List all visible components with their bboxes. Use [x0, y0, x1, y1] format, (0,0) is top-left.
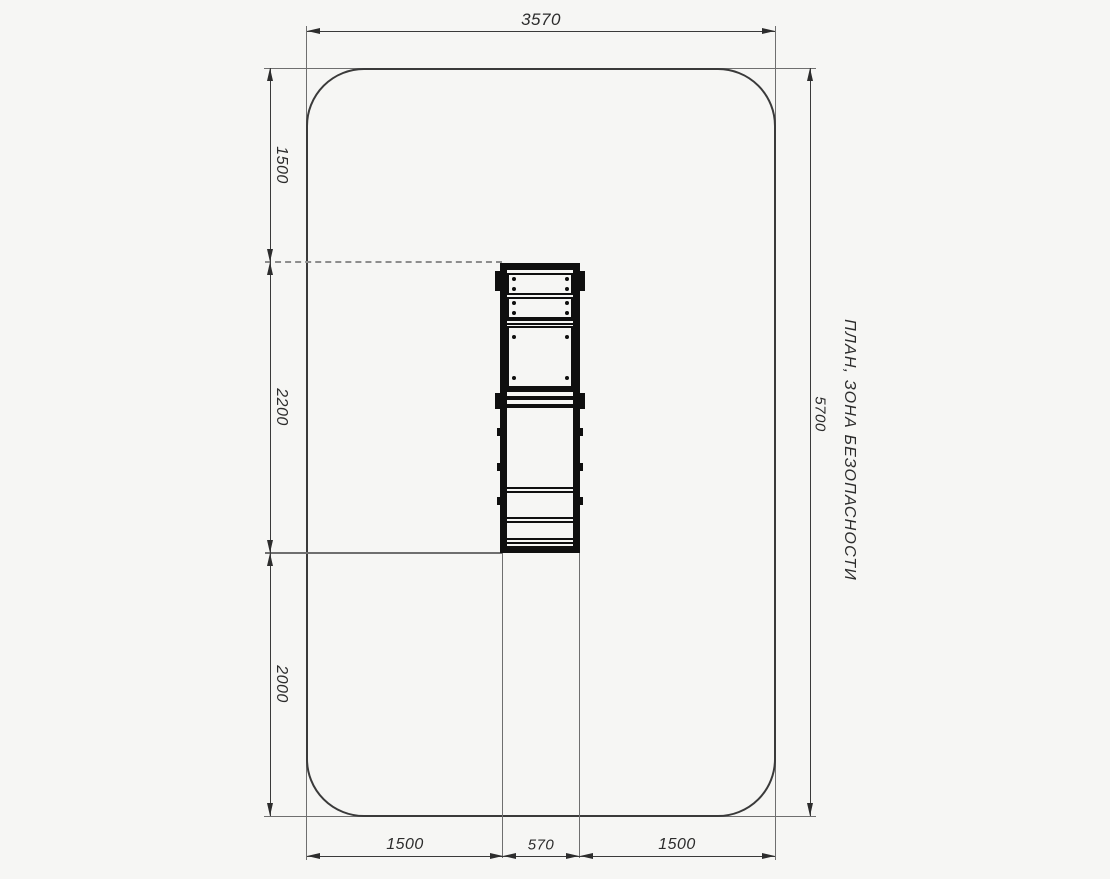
rail-notch [497, 497, 500, 505]
mounting-tab [580, 271, 585, 291]
dimension-label-bottom-left: 1500 [386, 836, 424, 854]
equipment-panel [507, 273, 573, 295]
dim-arrow [580, 853, 593, 859]
equipment-bottom-bar [500, 546, 580, 553]
rail-notch [497, 428, 500, 436]
dim-arrow [807, 803, 813, 816]
dimension-label-left-top: 1500 [272, 146, 290, 184]
screw-dot [565, 376, 569, 380]
screw-dot [512, 301, 516, 305]
screw-dot [565, 335, 569, 339]
equipment-left-extension-line [502, 553, 503, 858]
dim-arrow [267, 68, 273, 81]
ladder-rung-thin [507, 491, 573, 493]
screw-dot [565, 277, 569, 281]
dim-arrow [267, 803, 273, 816]
mounting-tab [495, 271, 500, 291]
screw-dot [512, 287, 516, 291]
equipment-bottom-reference-line [265, 552, 503, 554]
dim-arrow [807, 68, 813, 81]
screw-dot [512, 376, 516, 380]
equipment-right-extension-line [579, 553, 580, 858]
equipment-top-bar [500, 263, 580, 270]
left-dimension-line [270, 68, 271, 816]
dim-arrow [490, 853, 503, 859]
right-dimension-line [810, 68, 811, 816]
screw-dot [565, 301, 569, 305]
plan-drawing: 3570 1500 2200 2000 5700 ПЛАН, ЗОНА БЕЗО… [0, 0, 1110, 879]
equipment-top-reference-dashed-line [265, 261, 502, 263]
screw-dot [512, 311, 516, 315]
dim-arrow [267, 540, 273, 553]
ladder-rail-left [500, 263, 507, 553]
top-dimension-line [307, 31, 775, 32]
dimension-label-top: 3570 [521, 10, 561, 30]
ladder-rung-thin [507, 538, 573, 540]
screw-dot [512, 335, 516, 339]
dimension-label-bottom-center: 570 [528, 837, 555, 854]
drawing-title: ПЛАН, ЗОНА БЕЗОПАСНОСТИ [840, 319, 858, 581]
safety-zone-outline [306, 68, 776, 817]
dim-arrow [762, 853, 775, 859]
mounting-tab [580, 393, 585, 409]
ladder-rung [500, 404, 580, 408]
dimension-label-right: 5700 [812, 396, 829, 431]
dim-arrow [307, 853, 320, 859]
rail-notch [497, 463, 500, 471]
equipment-panel-large [507, 326, 573, 388]
dimension-label-left-middle: 2200 [272, 388, 290, 426]
ladder-rung-thin [507, 542, 573, 544]
screw-dot [512, 277, 516, 281]
ladder-rail-right [573, 263, 580, 553]
rail-notch [580, 463, 583, 471]
screw-dot [565, 311, 569, 315]
dim-arrow [267, 553, 273, 566]
ladder-rung-thin [507, 521, 573, 523]
separator-line [503, 323, 577, 325]
screw-dot [565, 287, 569, 291]
ladder-rung [500, 396, 580, 400]
equipment-panel [507, 297, 573, 319]
dim-arrow [267, 249, 273, 262]
dim-arrow [503, 853, 516, 859]
rail-notch [580, 497, 583, 505]
dim-arrow [762, 28, 775, 34]
dimension-label-left-bottom: 2000 [272, 665, 290, 703]
bottom-dimension-line [307, 856, 775, 857]
dimension-label-bottom-right: 1500 [658, 836, 696, 854]
dim-arrow [267, 262, 273, 275]
ladder-rung [500, 388, 580, 392]
separator-line [503, 319, 577, 321]
ladder-rung-thin [507, 517, 573, 519]
dim-arrow [566, 853, 579, 859]
ladder-rung-thin [507, 487, 573, 489]
dim-arrow [307, 28, 320, 34]
rail-notch [580, 428, 583, 436]
